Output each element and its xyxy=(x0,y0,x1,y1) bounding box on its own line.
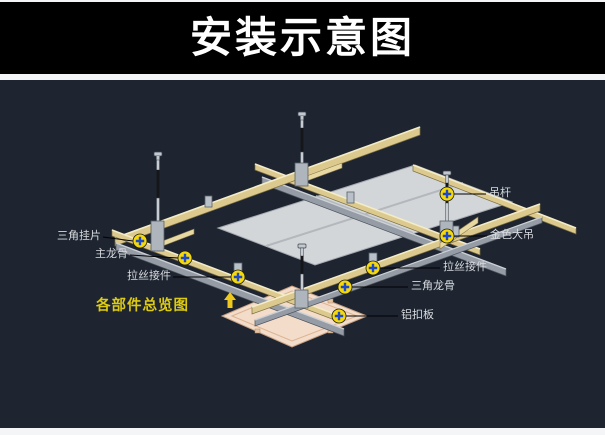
installation-diagram-page: 安装示意图 xyxy=(0,0,605,435)
ceiling-assembly-illustration xyxy=(0,0,605,435)
hanging-rod xyxy=(295,112,308,186)
hanging-rod xyxy=(151,152,164,251)
overview-caption: 各部件总览图 xyxy=(96,294,189,315)
part-annotation xyxy=(332,309,398,323)
